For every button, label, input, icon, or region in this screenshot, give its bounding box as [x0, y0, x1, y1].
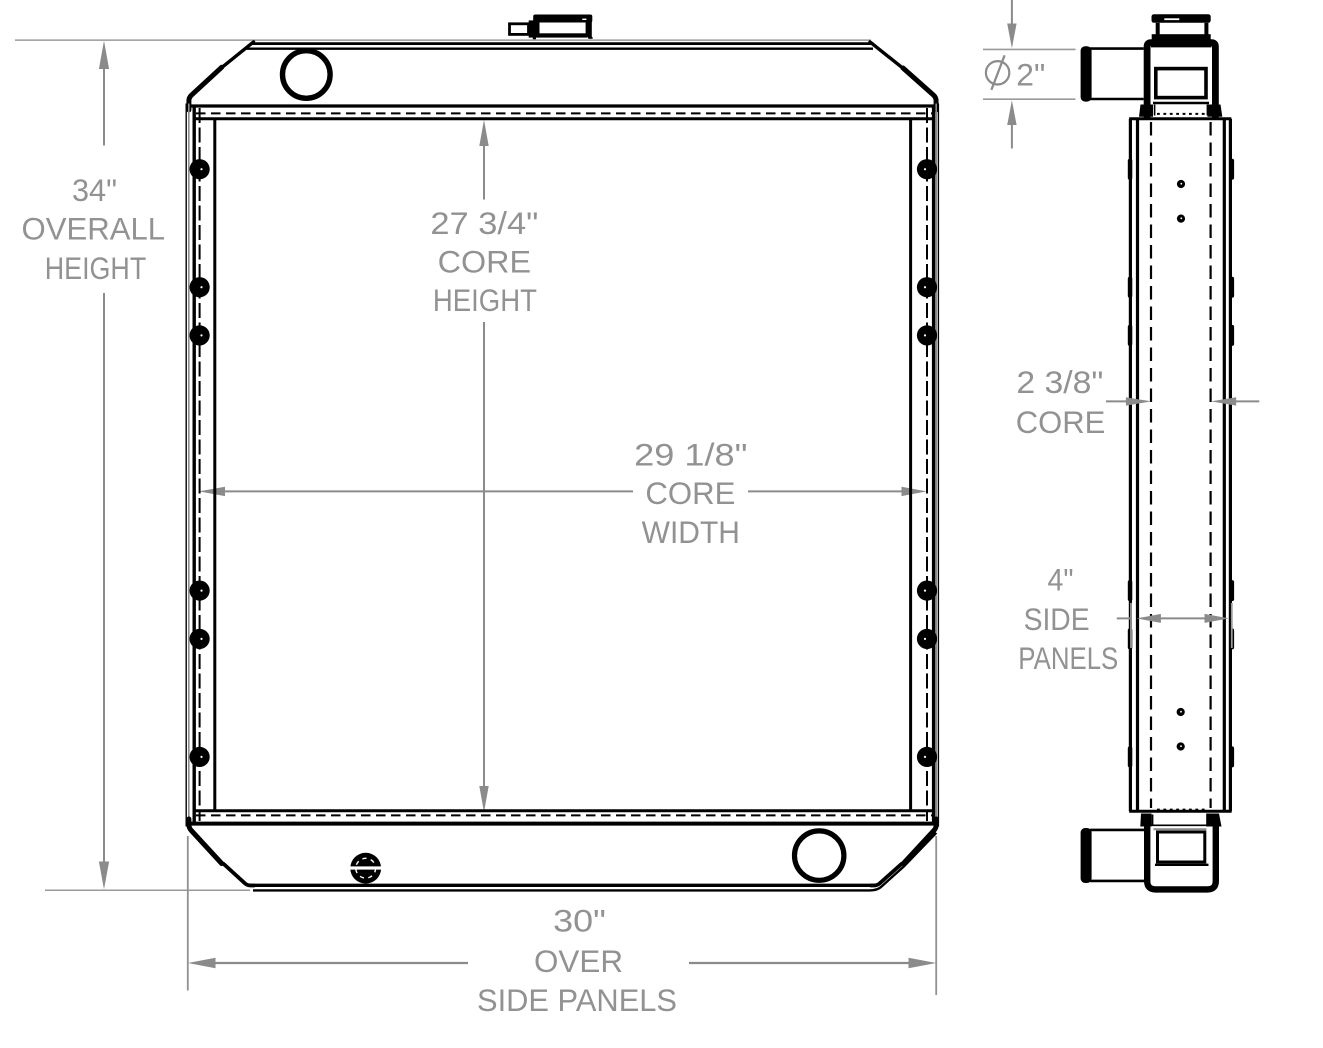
- svg-text:PANELS: PANELS: [1018, 640, 1118, 676]
- svg-text:OVER: OVER: [534, 943, 623, 979]
- svg-text:HEIGHT: HEIGHT: [433, 282, 537, 318]
- svg-text:HEIGHT: HEIGHT: [45, 250, 147, 286]
- svg-text:30": 30": [553, 903, 606, 939]
- svg-text:WIDTH: WIDTH: [642, 514, 740, 550]
- svg-text:2 3/8": 2 3/8": [1016, 364, 1103, 400]
- svg-text:29 1/8": 29 1/8": [634, 437, 747, 473]
- svg-text:4": 4": [1048, 562, 1074, 598]
- svg-text:CORE: CORE: [438, 244, 531, 280]
- svg-text:34": 34": [72, 172, 117, 208]
- svg-text:SIDE: SIDE: [1024, 601, 1090, 637]
- svg-text:CORE: CORE: [645, 475, 735, 511]
- svg-text:OVERALL: OVERALL: [22, 211, 166, 247]
- svg-text:2": 2": [1016, 57, 1045, 93]
- svg-text:CORE: CORE: [1016, 404, 1106, 440]
- svg-text:SIDE PANELS: SIDE PANELS: [477, 982, 677, 1018]
- svg-text:27 3/4": 27 3/4": [430, 205, 538, 241]
